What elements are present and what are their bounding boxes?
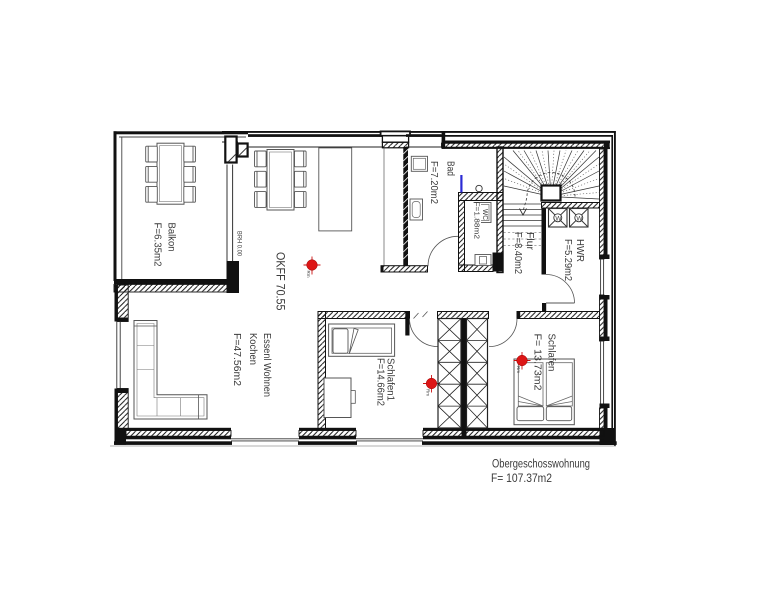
svg-text:BRH 0.00: BRH 0.00 xyxy=(236,231,243,256)
svg-text:F= 107.37m2: F= 107.37m2 xyxy=(491,471,552,485)
svg-text:Flur: Flur xyxy=(524,232,536,250)
svg-text:W: W xyxy=(555,215,562,222)
svg-text:F=8.40m2: F=8.40m2 xyxy=(512,232,524,274)
svg-text:Bad: Bad xyxy=(445,161,457,176)
svg-text:Balkon: Balkon xyxy=(166,223,178,252)
svg-text:F= 13.73m2: F= 13.73m2 xyxy=(532,334,544,391)
svg-text:F=47.56m2: F=47.56m2 xyxy=(231,333,243,386)
svg-text:Essenl Wohnen: Essenl Wohnen xyxy=(261,333,273,397)
svg-text:F=6.35m2: F=6.35m2 xyxy=(152,223,164,267)
svg-text:Schlafen: Schlafen xyxy=(546,334,558,372)
svg-text:OKFF 70.55: OKFF 70.55 xyxy=(274,252,288,311)
svg-text:W: W xyxy=(576,215,583,222)
svg-text:Obergeschosswohnung: Obergeschosswohnung xyxy=(492,457,590,471)
svg-text:F=1.88m2: F=1.88m2 xyxy=(473,202,482,240)
svg-text:F=5.29m2: F=5.29m2 xyxy=(562,239,574,281)
svg-text:HWR: HWR xyxy=(574,239,586,262)
svg-text:Rm: Rm xyxy=(426,389,431,396)
svg-text:F=14.66m2: F=14.66m2 xyxy=(375,358,387,406)
svg-text:F=7.20m2: F=7.20m2 xyxy=(428,161,440,204)
svg-text:Kochen: Kochen xyxy=(247,333,259,365)
svg-text:Rm: Rm xyxy=(306,271,311,278)
svg-text:Rm: Rm xyxy=(516,366,521,373)
